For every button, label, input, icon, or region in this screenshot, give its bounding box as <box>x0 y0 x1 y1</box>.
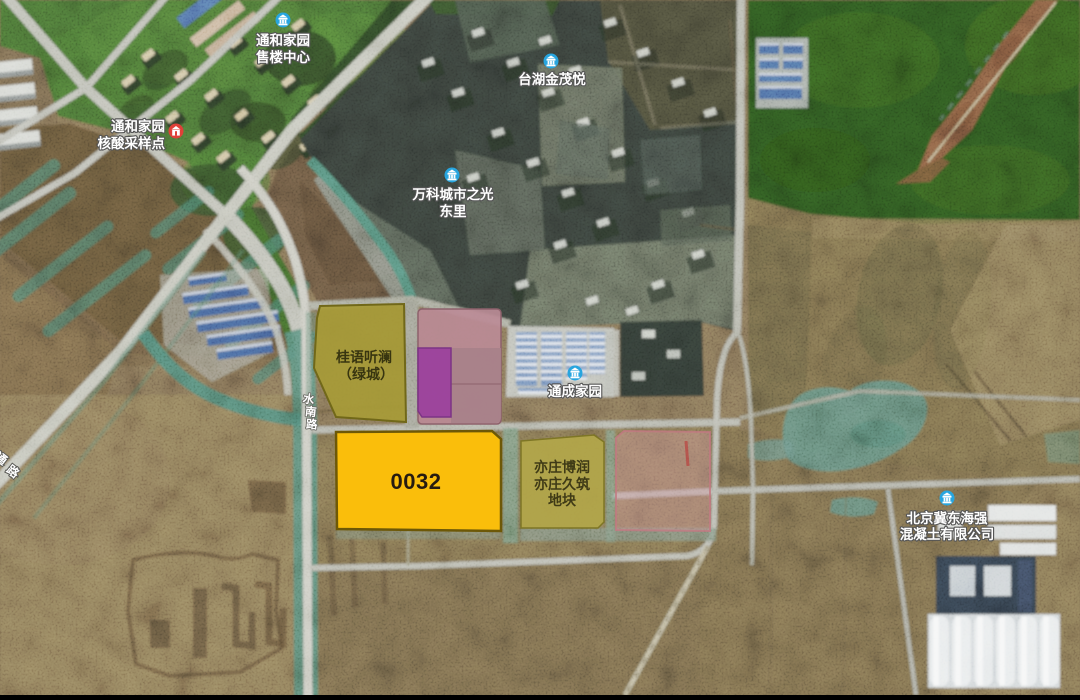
svg-text:台湖金茂悦: 台湖金茂悦 <box>518 71 586 87</box>
svg-text:万科城市之光: 万科城市之光 <box>412 186 494 202</box>
svg-text:混凝土有限公司: 混凝土有限公司 <box>900 526 995 542</box>
svg-text:北京冀东海强: 北京冀东海强 <box>907 510 988 526</box>
svg-text:南: 南 <box>304 404 317 419</box>
svg-text:通和家园: 通和家园 <box>256 32 310 48</box>
svg-text:核酸采样点: 核酸采样点 <box>98 135 166 151</box>
svg-text:路: 路 <box>306 417 319 432</box>
svg-text:东里: 东里 <box>440 203 467 219</box>
svg-text:通和家园: 通和家园 <box>111 118 165 134</box>
svg-text:售楼中心: 售楼中心 <box>255 49 310 65</box>
svg-text:通成家园: 通成家园 <box>548 383 602 399</box>
